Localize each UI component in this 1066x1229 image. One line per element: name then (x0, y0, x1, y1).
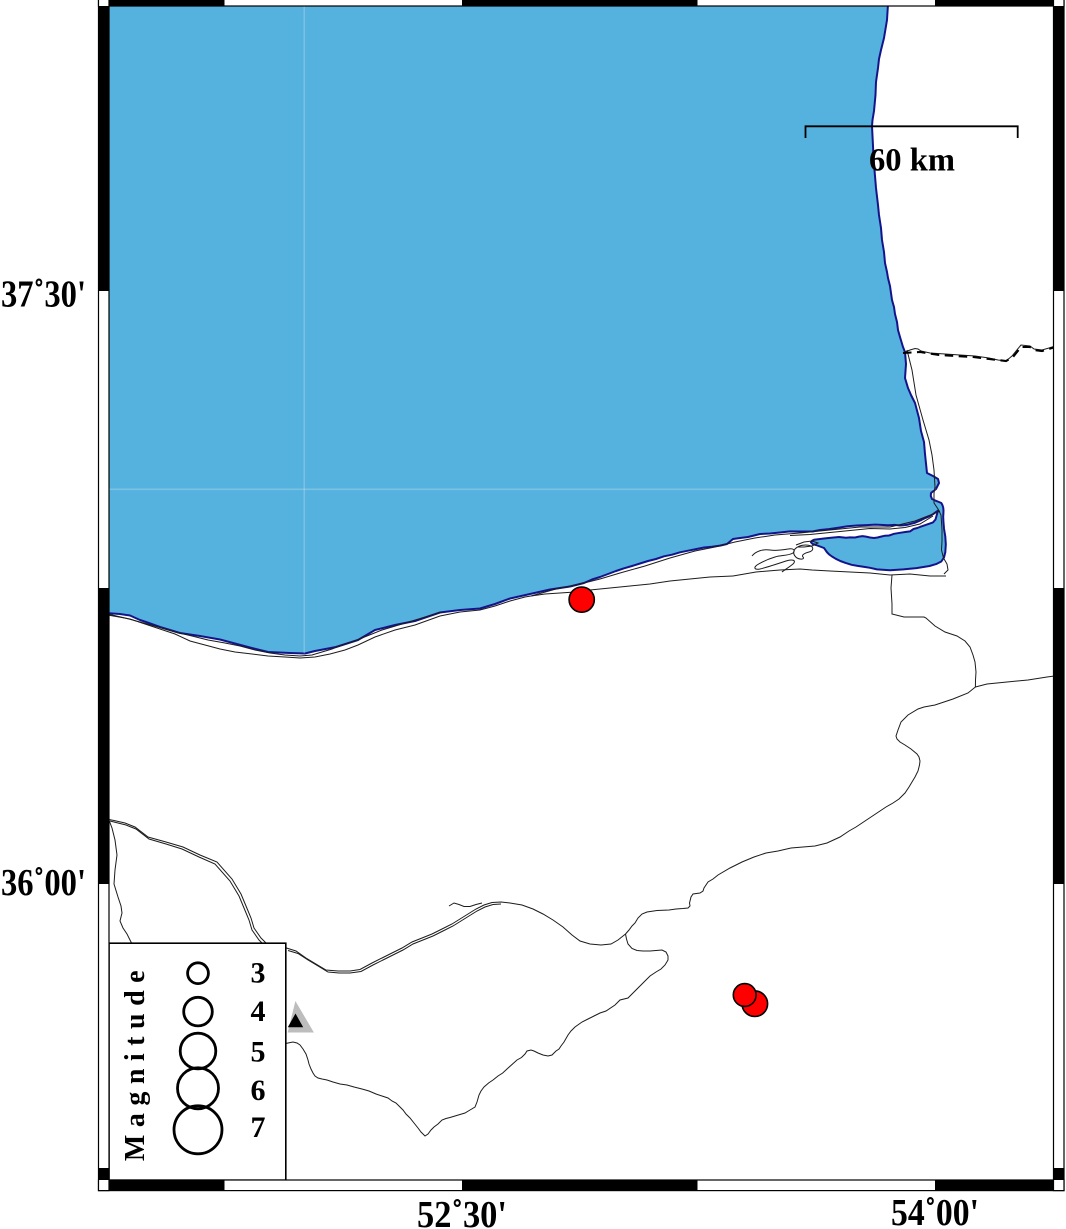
svg-text:54˚00': 54˚00' (891, 1192, 979, 1229)
svg-text:7: 7 (251, 1111, 266, 1144)
svg-text:60 km: 60 km (869, 143, 955, 179)
svg-text:36˚00': 36˚00' (1, 862, 86, 904)
svg-text:Magnitude: Magnitude (120, 963, 151, 1161)
svg-text:5: 5 (251, 1035, 266, 1068)
svg-text:37˚30': 37˚30' (1, 274, 86, 316)
svg-text:4: 4 (251, 995, 266, 1028)
svg-text:6: 6 (251, 1074, 266, 1107)
svg-text:52˚30': 52˚30' (417, 1194, 507, 1229)
svg-text:3: 3 (251, 957, 266, 990)
